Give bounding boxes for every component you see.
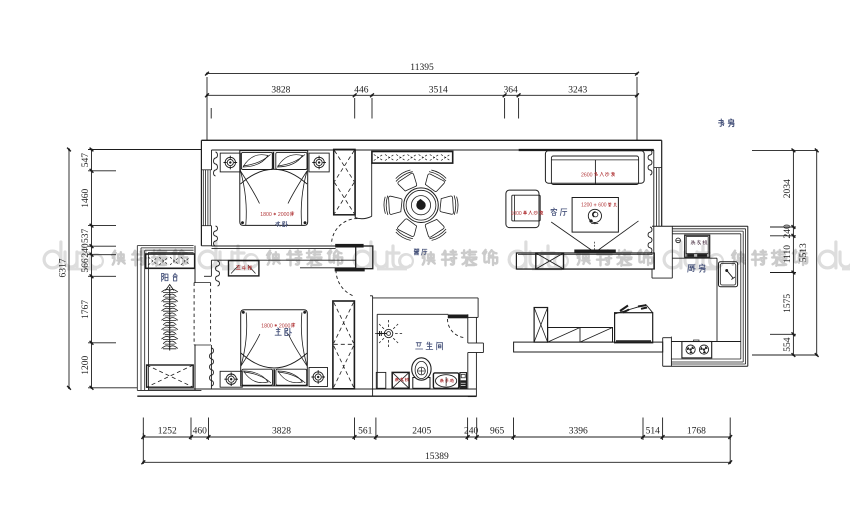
svg-text:1200: 1200	[581, 203, 592, 209]
svg-text:965: 965	[490, 427, 505, 437]
svg-text:547: 547	[81, 153, 91, 168]
svg-text:3828: 3828	[272, 427, 291, 437]
svg-text:1767: 1767	[81, 300, 91, 319]
svg-text:1200: 1200	[81, 356, 91, 375]
svg-text:2034: 2034	[783, 179, 793, 198]
svg-text:2000: 2000	[278, 212, 290, 218]
svg-text:446: 446	[354, 85, 369, 95]
svg-text:15389: 15389	[425, 452, 449, 462]
svg-text:1768: 1768	[687, 427, 706, 437]
svg-text:6317: 6317	[59, 258, 69, 277]
svg-text:1460: 1460	[81, 188, 91, 207]
svg-text:460: 460	[193, 427, 208, 437]
svg-text:600: 600	[598, 203, 607, 209]
svg-text:3828: 3828	[271, 85, 290, 95]
svg-text:3243: 3243	[568, 85, 587, 95]
svg-text:2600: 2600	[581, 172, 593, 178]
svg-text:240: 240	[81, 243, 91, 258]
svg-text:566: 566	[81, 258, 91, 273]
svg-text:5513: 5513	[799, 243, 809, 262]
svg-text:537: 537	[81, 229, 91, 244]
svg-text:2405: 2405	[412, 427, 431, 437]
svg-text:3514: 3514	[429, 85, 448, 95]
svg-text:240: 240	[783, 224, 793, 239]
svg-text:1252: 1252	[158, 427, 177, 437]
svg-text:1575: 1575	[783, 294, 793, 313]
svg-text:3396: 3396	[569, 427, 588, 437]
svg-text:514: 514	[646, 427, 661, 437]
svg-text:364: 364	[503, 85, 518, 95]
svg-text:1110: 1110	[783, 245, 793, 264]
svg-text:1800: 1800	[261, 323, 273, 329]
svg-text:1000: 1000	[511, 211, 522, 217]
svg-text:561: 561	[358, 427, 373, 437]
svg-text:554: 554	[783, 337, 793, 352]
svg-text:1800: 1800	[260, 212, 272, 218]
svg-text:11395: 11395	[410, 63, 434, 73]
